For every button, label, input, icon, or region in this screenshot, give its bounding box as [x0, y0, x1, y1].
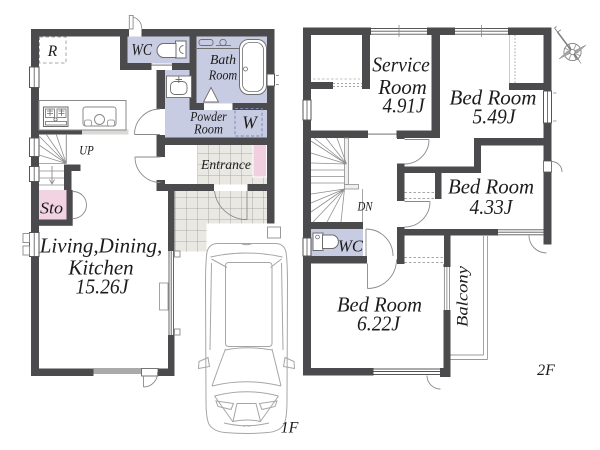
- svg-text:Room: Room: [208, 69, 237, 84]
- svg-text:UP: UP: [79, 144, 94, 158]
- svg-text:Balcony: Balcony: [455, 265, 472, 327]
- svg-text:Entrance: Entrance: [200, 158, 251, 173]
- svg-text:2F: 2F: [537, 362, 555, 379]
- svg-text:6.22J: 6.22J: [357, 312, 402, 336]
- svg-text:15.26J: 15.26J: [76, 275, 131, 299]
- svg-text:1F: 1F: [281, 420, 299, 437]
- svg-text:R: R: [47, 43, 58, 60]
- svg-text:Living,Dining,: Living,Dining,: [39, 234, 163, 258]
- svg-text:DN: DN: [357, 200, 373, 214]
- svg-text:WC: WC: [132, 40, 153, 59]
- svg-text:Room: Room: [193, 123, 223, 138]
- svg-text:4.33J: 4.33J: [470, 195, 515, 219]
- svg-text:Bath: Bath: [210, 53, 236, 68]
- svg-text:WC: WC: [338, 237, 364, 256]
- svg-text:W: W: [242, 113, 258, 133]
- svg-text:5.49J: 5.49J: [473, 105, 518, 129]
- svg-text:4.91J: 4.91J: [383, 94, 427, 118]
- svg-text:Service: Service: [372, 53, 430, 77]
- svg-text:Sto: Sto: [40, 199, 63, 218]
